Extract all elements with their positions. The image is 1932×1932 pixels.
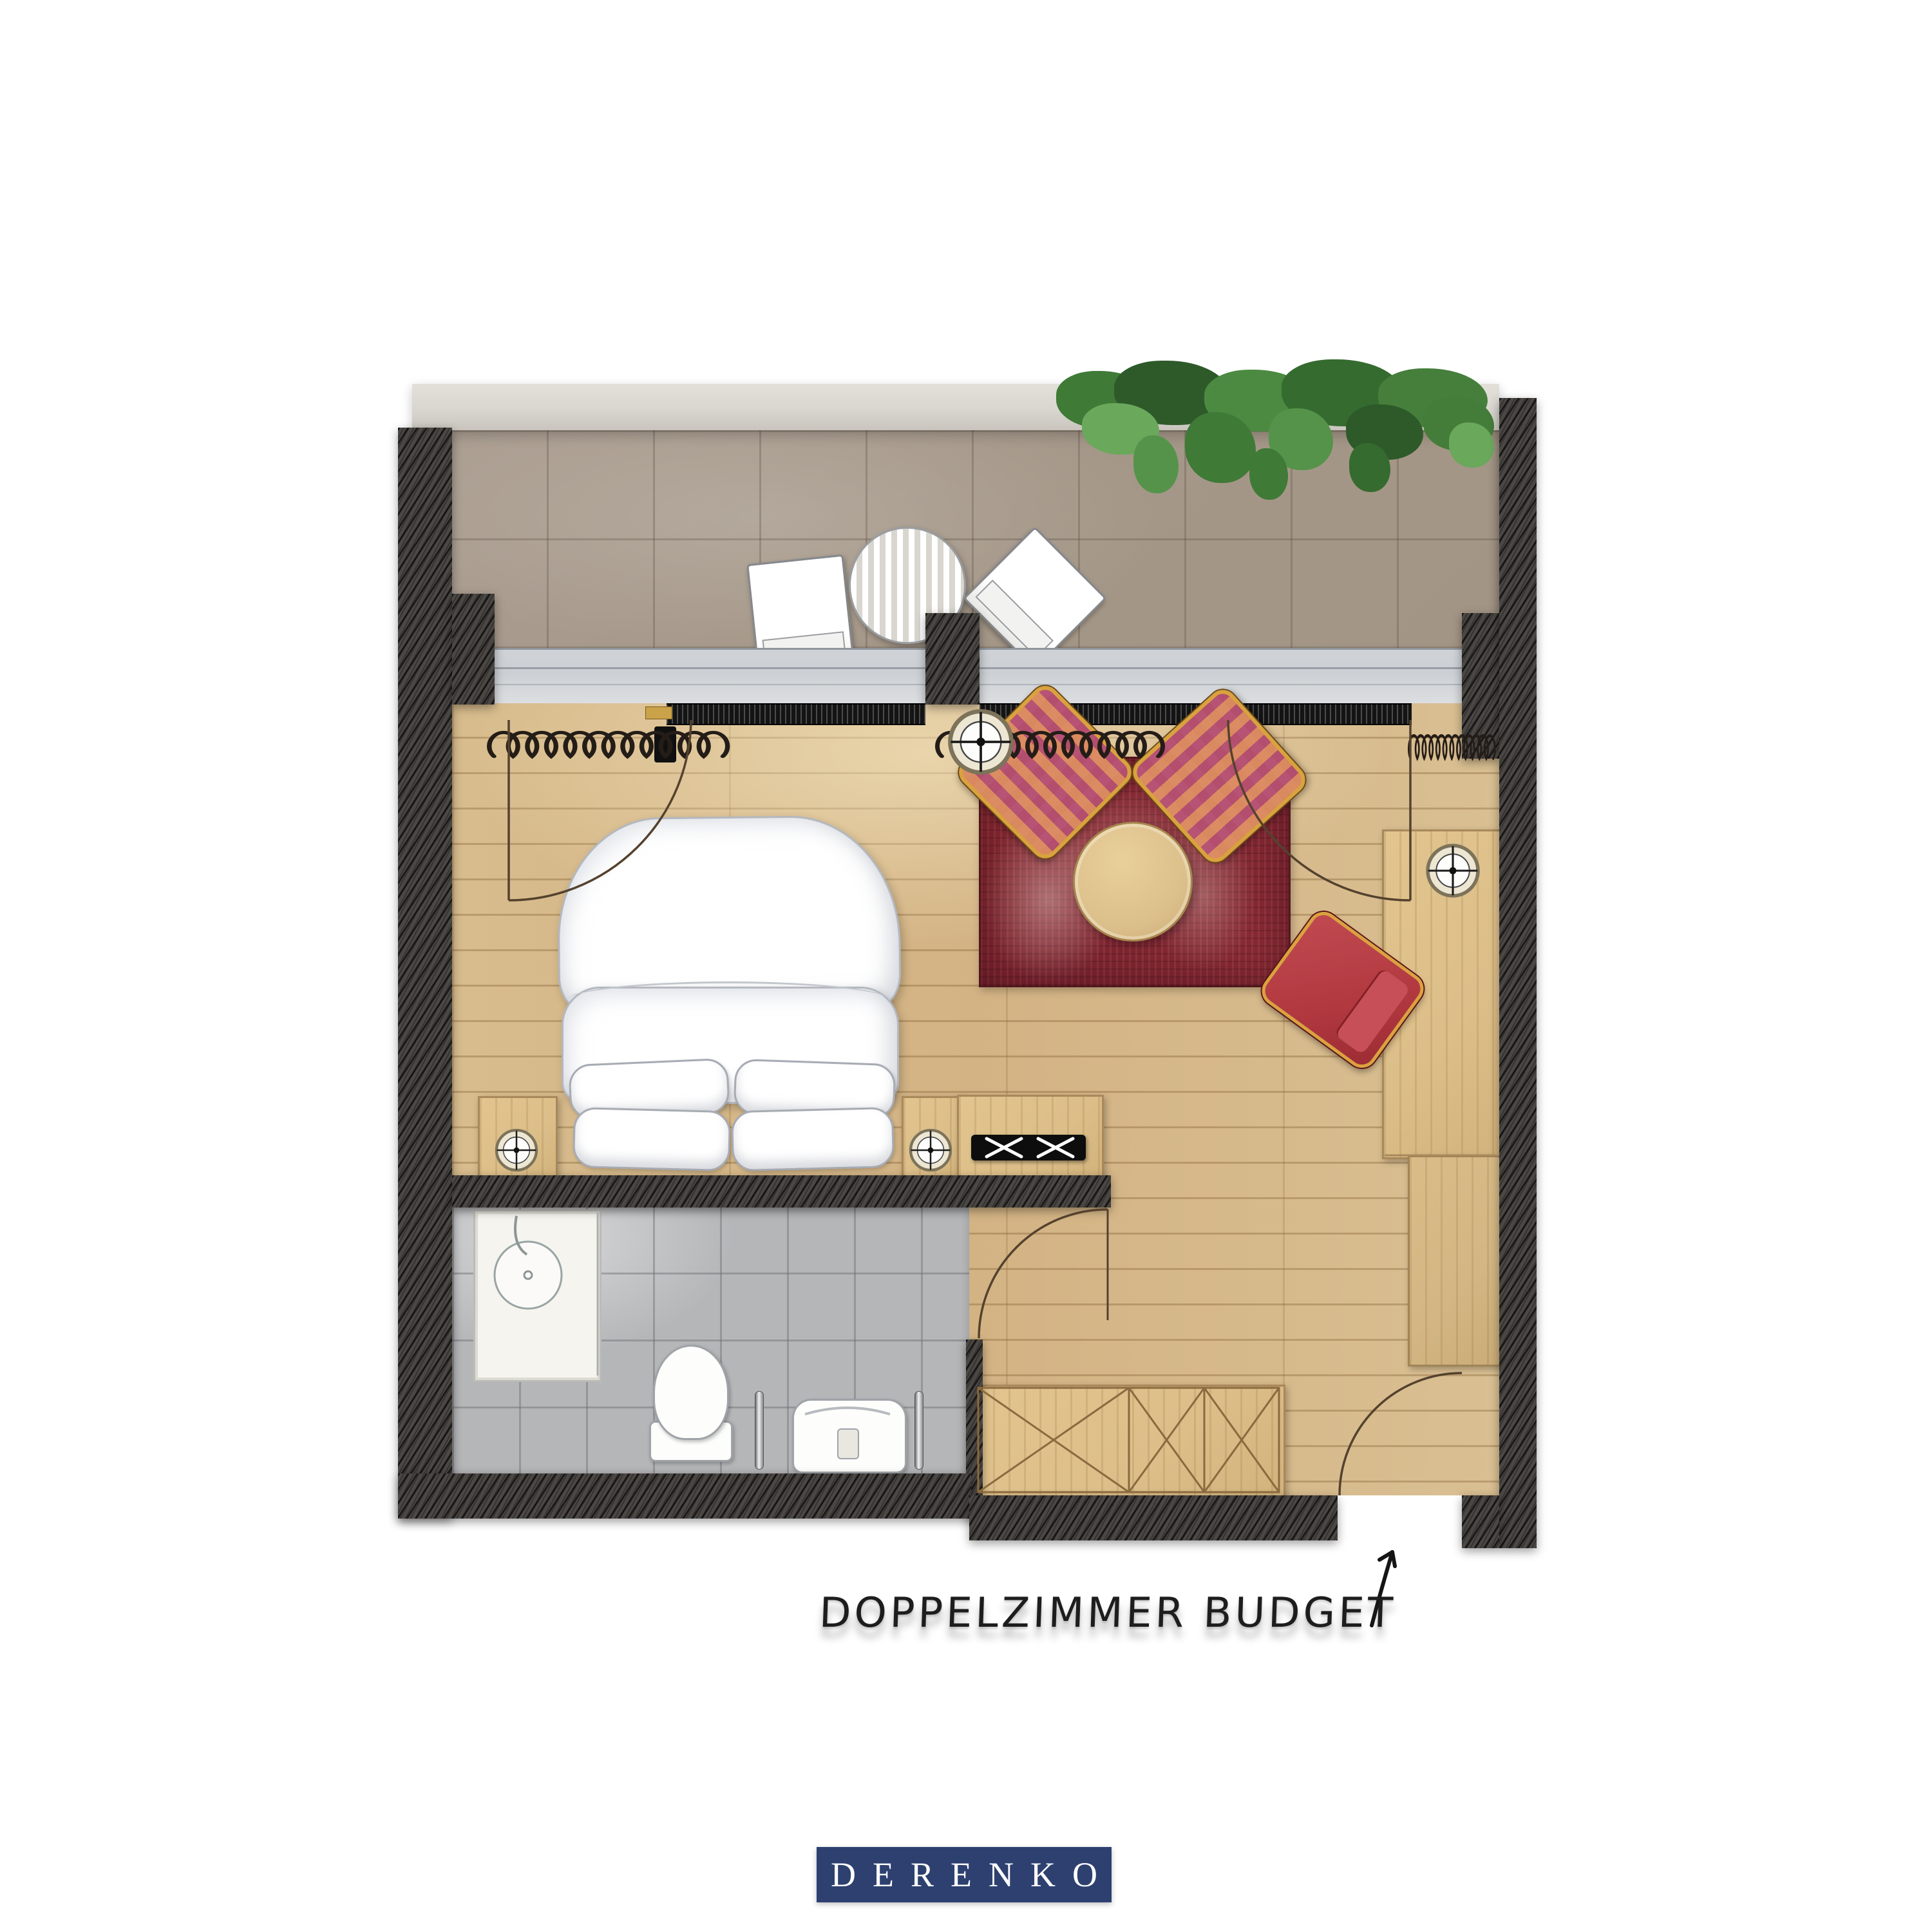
curtain-left (489, 732, 728, 756)
curtain-right-wall (1408, 735, 1495, 759)
reading-lamp-left (497, 1130, 536, 1170)
room-type-label: DOPPELZIMMER BUDGET (766, 1589, 1450, 1637)
plan-linework (0, 0, 1932, 1932)
floor-lamp (951, 712, 1012, 773)
washbasin-basin-line (805, 1408, 890, 1414)
floor-plan-canvas: DOPPELZIMMER BUDGET DERENKO (0, 0, 1932, 1932)
derenko-logo: DERENKO (817, 1847, 1112, 1902)
tv-stand-legs (987, 1139, 1073, 1157)
bathroom-door-swing (979, 1209, 1108, 1338)
wardrobe-x-symbols (978, 1388, 1279, 1492)
reading-lamp-right (911, 1130, 951, 1170)
shower-head-icon (495, 1211, 598, 1376)
balcony-door-swing-right (1228, 720, 1410, 900)
entrance-door-swing (1340, 1373, 1462, 1495)
desk-lamp (1428, 846, 1478, 896)
derenko-logo-text: DERENKO (814, 1855, 1114, 1895)
